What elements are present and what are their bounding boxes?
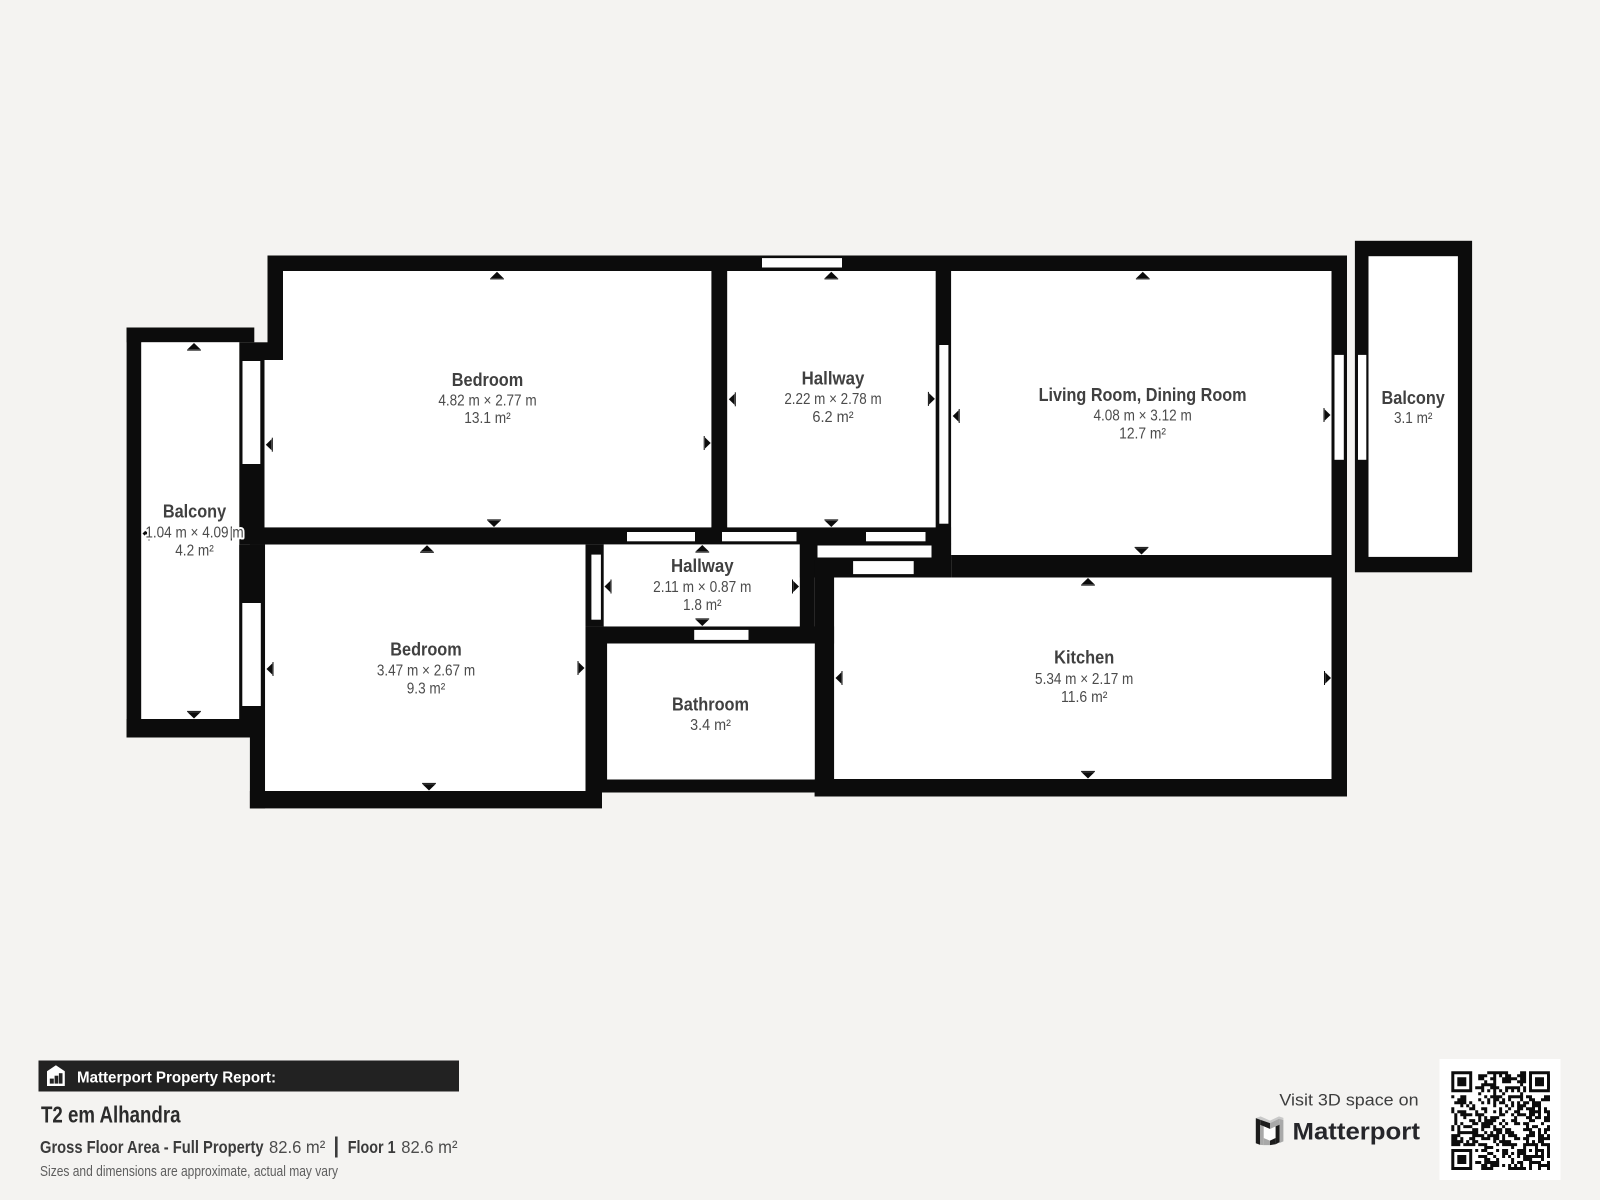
svg-text:82.6 m²: 82.6 m² bbox=[269, 1137, 325, 1157]
svg-text:13.1 m²: 13.1 m² bbox=[464, 410, 510, 427]
svg-text:Kitchen: Kitchen bbox=[1054, 647, 1114, 668]
svg-text:9.3 m²: 9.3 m² bbox=[407, 681, 446, 698]
svg-text:2.11 m × 0.87 m: 2.11 m × 0.87 m bbox=[653, 579, 751, 596]
svg-text:3.47 m × 2.67 m: 3.47 m × 2.67 m bbox=[377, 663, 475, 680]
svg-text:Balcony: Balcony bbox=[163, 500, 227, 521]
svg-text:11.6 m²: 11.6 m² bbox=[1061, 689, 1107, 706]
svg-text:Living Room, Dining Room: Living Room, Dining Room bbox=[1039, 384, 1247, 405]
svg-text:1.04 m × 4.09 m: 1.04 m × 4.09 m bbox=[145, 525, 243, 542]
svg-text:Balcony: Balcony bbox=[1382, 387, 1446, 408]
svg-text:1.8 m²: 1.8 m² bbox=[683, 597, 722, 614]
svg-text:5.34 m × 2.17 m: 5.34 m × 2.17 m bbox=[1035, 671, 1133, 688]
svg-text:3.4 m²: 3.4 m² bbox=[690, 717, 731, 734]
svg-text:Matterport Property Report:: Matterport Property Report: bbox=[77, 1070, 276, 1087]
svg-text:4.08 m × 3.12 m: 4.08 m × 3.12 m bbox=[1093, 408, 1191, 425]
svg-text:4.2 m²: 4.2 m² bbox=[175, 543, 214, 560]
svg-text:3.1 m²: 3.1 m² bbox=[1394, 410, 1433, 427]
svg-text:Matterport: Matterport bbox=[1293, 1119, 1420, 1146]
svg-text:Bathroom: Bathroom bbox=[672, 694, 749, 715]
svg-text:Sizes and dimensions are appro: Sizes and dimensions are approximate, ac… bbox=[40, 1164, 339, 1180]
svg-text:Visit 3D space on: Visit 3D space on bbox=[1279, 1092, 1418, 1110]
svg-text:Hallway: Hallway bbox=[671, 555, 734, 576]
svg-text:6.2 m²: 6.2 m² bbox=[812, 409, 853, 426]
svg-text:2.22 m × 2.78 m: 2.22 m × 2.78 m bbox=[784, 391, 881, 408]
svg-text:82.6 m²: 82.6 m² bbox=[401, 1137, 457, 1157]
svg-text:Bedroom: Bedroom bbox=[390, 638, 462, 659]
svg-text:12.7 m²: 12.7 m² bbox=[1119, 425, 1166, 442]
svg-text:Hallway: Hallway bbox=[802, 368, 865, 389]
svg-text:Floor 1: Floor 1 bbox=[348, 1137, 396, 1157]
svg-text:4.82 m × 2.77 m: 4.82 m × 2.77 m bbox=[438, 393, 536, 410]
svg-text:T2 em Alhandra: T2 em Alhandra bbox=[41, 1102, 181, 1128]
svg-text:Gross Floor Area - Full Proper: Gross Floor Area - Full Property bbox=[40, 1137, 264, 1157]
svg-text:Bedroom: Bedroom bbox=[452, 369, 524, 390]
